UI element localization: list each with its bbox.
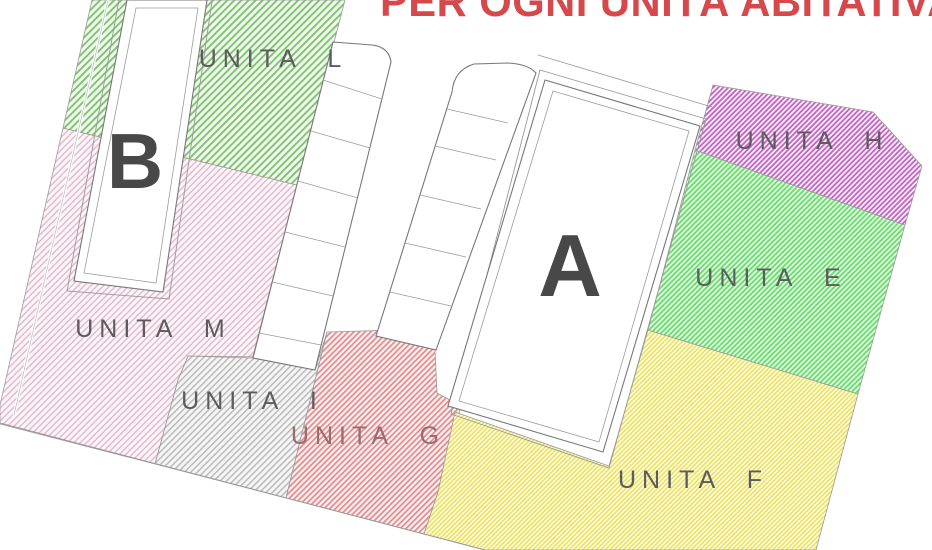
unit-label-e: UNITA E	[695, 264, 846, 292]
unit-label-g: UNITA G	[291, 422, 445, 450]
unit-label-m: UNITA M	[75, 315, 231, 343]
plan-canvas: B A UNITA L UNITA M UNITA I UNITA G UNIT…	[0, 0, 932, 550]
building-label-b: B	[107, 117, 163, 205]
plan-title: PER OGNI UNITÀ ABITATIVA	[380, 0, 923, 24]
building-label-a: A	[538, 216, 602, 315]
unit-label-l: UNITA L	[199, 45, 348, 73]
unit-label-i: UNITA I	[181, 387, 323, 415]
site-plan-image: B A UNITA L UNITA M UNITA I UNITA G UNIT…	[0, 0, 932, 550]
unit-label-h: UNITA H	[736, 127, 889, 155]
unit-label-f: UNITA F	[618, 466, 768, 494]
